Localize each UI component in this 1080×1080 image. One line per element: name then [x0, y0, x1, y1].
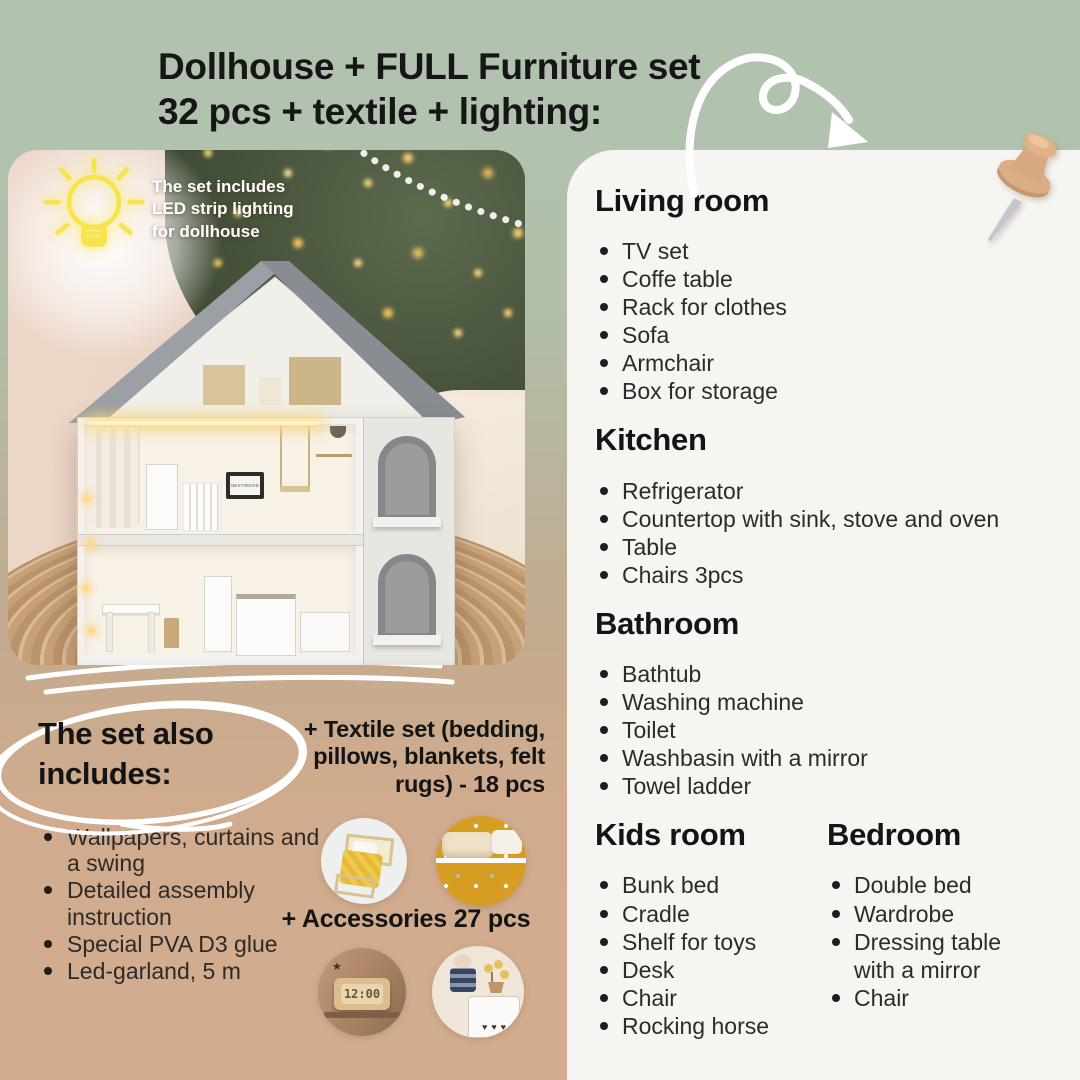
- list-item: Cradle: [595, 900, 827, 928]
- furniture-piece: [204, 576, 232, 652]
- arched-window: [378, 554, 436, 640]
- star-icon: ★: [332, 960, 342, 973]
- list-item: Bathtub: [595, 660, 1064, 688]
- heart-icon: ♥: [482, 1023, 487, 1032]
- list-item: Rocking horse: [595, 1012, 827, 1040]
- furniture-piece: [280, 426, 282, 488]
- list-item: Chairs 3pcs: [595, 561, 1022, 589]
- list-item: Wardrobe: [827, 900, 1039, 928]
- furniture-piece: [330, 426, 346, 438]
- list-item: Rack for clothes: [595, 293, 1064, 321]
- dollhouse-photo: NESTWOOD: [8, 150, 525, 665]
- also-includes-title: The set also includes:: [38, 714, 273, 795]
- room-section-kids-room: Kids room Bunk bed Cradle Shelf for toys…: [595, 816, 827, 1055]
- list-item: Toilet: [595, 716, 1064, 744]
- furniture-piece: [280, 486, 310, 492]
- furniture-piece: [300, 612, 350, 652]
- list-item: Special PVA D3 glue: [40, 931, 332, 957]
- list-item: Double bed: [827, 871, 1039, 899]
- room-title: Kids room: [595, 816, 827, 853]
- room-title: Bathroom: [595, 605, 1064, 642]
- mini-dresser: ♥♥♥: [468, 996, 520, 1038]
- list-item: Sofa: [595, 321, 1064, 349]
- clock-display: 12:00: [341, 984, 383, 1004]
- furniture-piece: [236, 594, 296, 656]
- room-list: Double bed Wardrobe Dressing table with …: [827, 871, 1064, 1011]
- heart-icon: ♥: [501, 1023, 506, 1032]
- list-item: Towel ladder: [595, 772, 1064, 800]
- room-list: Bathtub Washing machine Toilet Washbasin…: [595, 660, 1064, 800]
- list-item: Table: [595, 533, 1022, 561]
- room-section-kitchen: Kitchen Refrigerator Countertop with sin…: [595, 421, 1064, 588]
- room-section-bedroom: Bedroom Double bed Wardrobe Dressing tab…: [827, 816, 1064, 1055]
- mini-flower: [484, 964, 493, 973]
- mini-shelf: [324, 1012, 400, 1018]
- mini-doll-shirt: [450, 968, 476, 992]
- garland-light: [83, 495, 90, 502]
- list-item: Chair: [827, 984, 1039, 1012]
- mini-flower: [494, 960, 503, 969]
- mini-flower: [500, 970, 509, 979]
- furniture-piece: [148, 612, 155, 652]
- room-section-bathroom: Bathroom Bathtub Washing machine Toilet …: [595, 605, 1064, 800]
- mini-flower-pot: [488, 982, 504, 993]
- tv-screen: NESTWOOD: [226, 472, 264, 499]
- tv-brand-label: NESTWOOD: [230, 476, 260, 495]
- list-item: Armchair: [595, 349, 1064, 377]
- mini-shelf: [436, 858, 526, 863]
- room-list: Bunk bed Cradle Shelf for toys Desk Chai…: [595, 871, 827, 1039]
- room-list: Refrigerator Countertop with sink, stove…: [595, 477, 1064, 589]
- list-item: Led-garland, 5 m: [40, 958, 332, 984]
- house-body: NESTWOOD: [77, 417, 455, 665]
- furniture-piece: [106, 612, 113, 652]
- room-columns: Kids room Bunk bed Cradle Shelf for toys…: [595, 816, 1064, 1055]
- furniture-piece: [88, 428, 140, 528]
- lower-floor: [84, 546, 356, 654]
- mini-doll: [454, 954, 471, 969]
- accessories-label: + Accessories 27 pcs: [266, 905, 546, 934]
- room-title: Bedroom: [827, 816, 1064, 853]
- list-item: Washbasin with a mirror: [595, 744, 1064, 772]
- garland-light: [82, 585, 89, 592]
- list-item: Bunk bed: [595, 871, 827, 899]
- list-item: Box for storage: [595, 377, 1064, 405]
- furniture-piece: [316, 454, 352, 457]
- furniture-piece: [164, 618, 179, 648]
- led-lighting-badge: The set includes LED strip lighting for …: [152, 176, 342, 243]
- led-strip-glow: [89, 421, 319, 425]
- mini-bed-foot: [334, 873, 376, 898]
- garland-light: [87, 540, 94, 547]
- rooms-panel: Living room TV set Coffe table Rack for …: [567, 150, 1080, 1080]
- lightbulb-icon: [36, 156, 152, 276]
- furniture-piece: [308, 426, 310, 488]
- upper-floor: NESTWOOD: [84, 424, 356, 532]
- list-item: Coffe table: [595, 265, 1064, 293]
- list-item: Dressing table with a mirror: [827, 928, 1039, 984]
- furniture-piece: [146, 464, 178, 530]
- furniture-piece: [182, 482, 222, 532]
- photo-circle-doll: ♥♥♥: [432, 946, 524, 1038]
- list-item: Chair: [595, 984, 827, 1012]
- room-list: TV set Coffe table Rack for clothes Sofa…: [595, 237, 1064, 405]
- pushpin-icon: [980, 106, 1080, 246]
- list-item: Refrigerator: [595, 477, 1022, 505]
- house-side-wall: [363, 418, 454, 665]
- list-item: Shelf for toys: [595, 928, 827, 956]
- photo-circle-clock: ★ 12:00: [318, 948, 406, 1036]
- room-title: Kitchen: [595, 421, 1064, 458]
- mini-clock: 12:00: [334, 978, 390, 1010]
- list-item: Washing machine: [595, 688, 1064, 716]
- list-item: Desk: [595, 956, 827, 984]
- heart-icon: ♥: [491, 1023, 496, 1032]
- list-item: Countertop with sink, stove and oven: [595, 505, 1022, 533]
- arched-window: [378, 436, 436, 522]
- garland-light: [88, 627, 95, 634]
- arrow-doodle-icon: [672, 42, 882, 202]
